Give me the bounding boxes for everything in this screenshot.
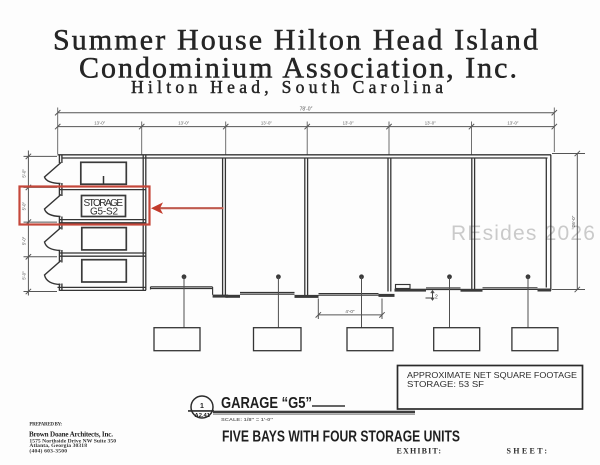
svg-text:13′-0″: 13′-0″ — [94, 121, 105, 126]
svg-text:13′-0″: 13′-0″ — [507, 121, 518, 126]
svg-text:Brown Doane Architects, Inc.: Brown Doane Architects, Inc. — [29, 431, 113, 439]
svg-text:2: 2 — [435, 295, 438, 301]
svg-text:78′-0″: 78′-0″ — [300, 106, 313, 112]
svg-text:5′-0″: 5′-0″ — [21, 202, 26, 211]
svg-text:(404) 603-3500: (404) 603-3500 — [29, 447, 67, 454]
svg-text:13′-0″: 13′-0″ — [425, 121, 436, 126]
svg-text:SCALE: 1/8″ = 1′-0″: SCALE: 1/8″ = 1′-0″ — [221, 417, 274, 423]
svg-text:STORAGE: 53 SF: STORAGE: 53 SF — [407, 379, 484, 389]
svg-text:13′-0″: 13′-0″ — [343, 121, 354, 126]
svg-text:SHEET:: SHEET: — [507, 447, 548, 456]
svg-text:G5-S2: G5-S2 — [90, 206, 118, 217]
svg-text:13′-0″: 13′-0″ — [261, 121, 272, 126]
svg-text:5′-0″: 5′-0″ — [21, 271, 26, 280]
svg-text:26′-0″: 26′-0″ — [571, 215, 576, 227]
svg-text:5′-0″: 5′-0″ — [21, 169, 26, 178]
svg-text:13′-0″: 13′-0″ — [178, 121, 189, 126]
svg-text:4′-0″: 4′-0″ — [345, 309, 355, 314]
svg-text:GARAGE “G5”: GARAGE “G5” — [221, 395, 312, 412]
svg-text:A2.41: A2.41 — [195, 413, 211, 419]
svg-text:PREPARED BY:: PREPARED BY: — [29, 422, 62, 427]
svg-text:EXHIBIT:: EXHIBIT: — [397, 447, 442, 456]
svg-text:FIVE BAYS WITH FOUR STORAGE UN: FIVE BAYS WITH FOUR STORAGE UNITS — [222, 428, 460, 445]
svg-text:Hilton Head, South Carolina: Hilton Head, South Carolina — [131, 77, 443, 97]
svg-text:5′-0″: 5′-0″ — [21, 236, 26, 245]
svg-text:1: 1 — [200, 403, 204, 410]
